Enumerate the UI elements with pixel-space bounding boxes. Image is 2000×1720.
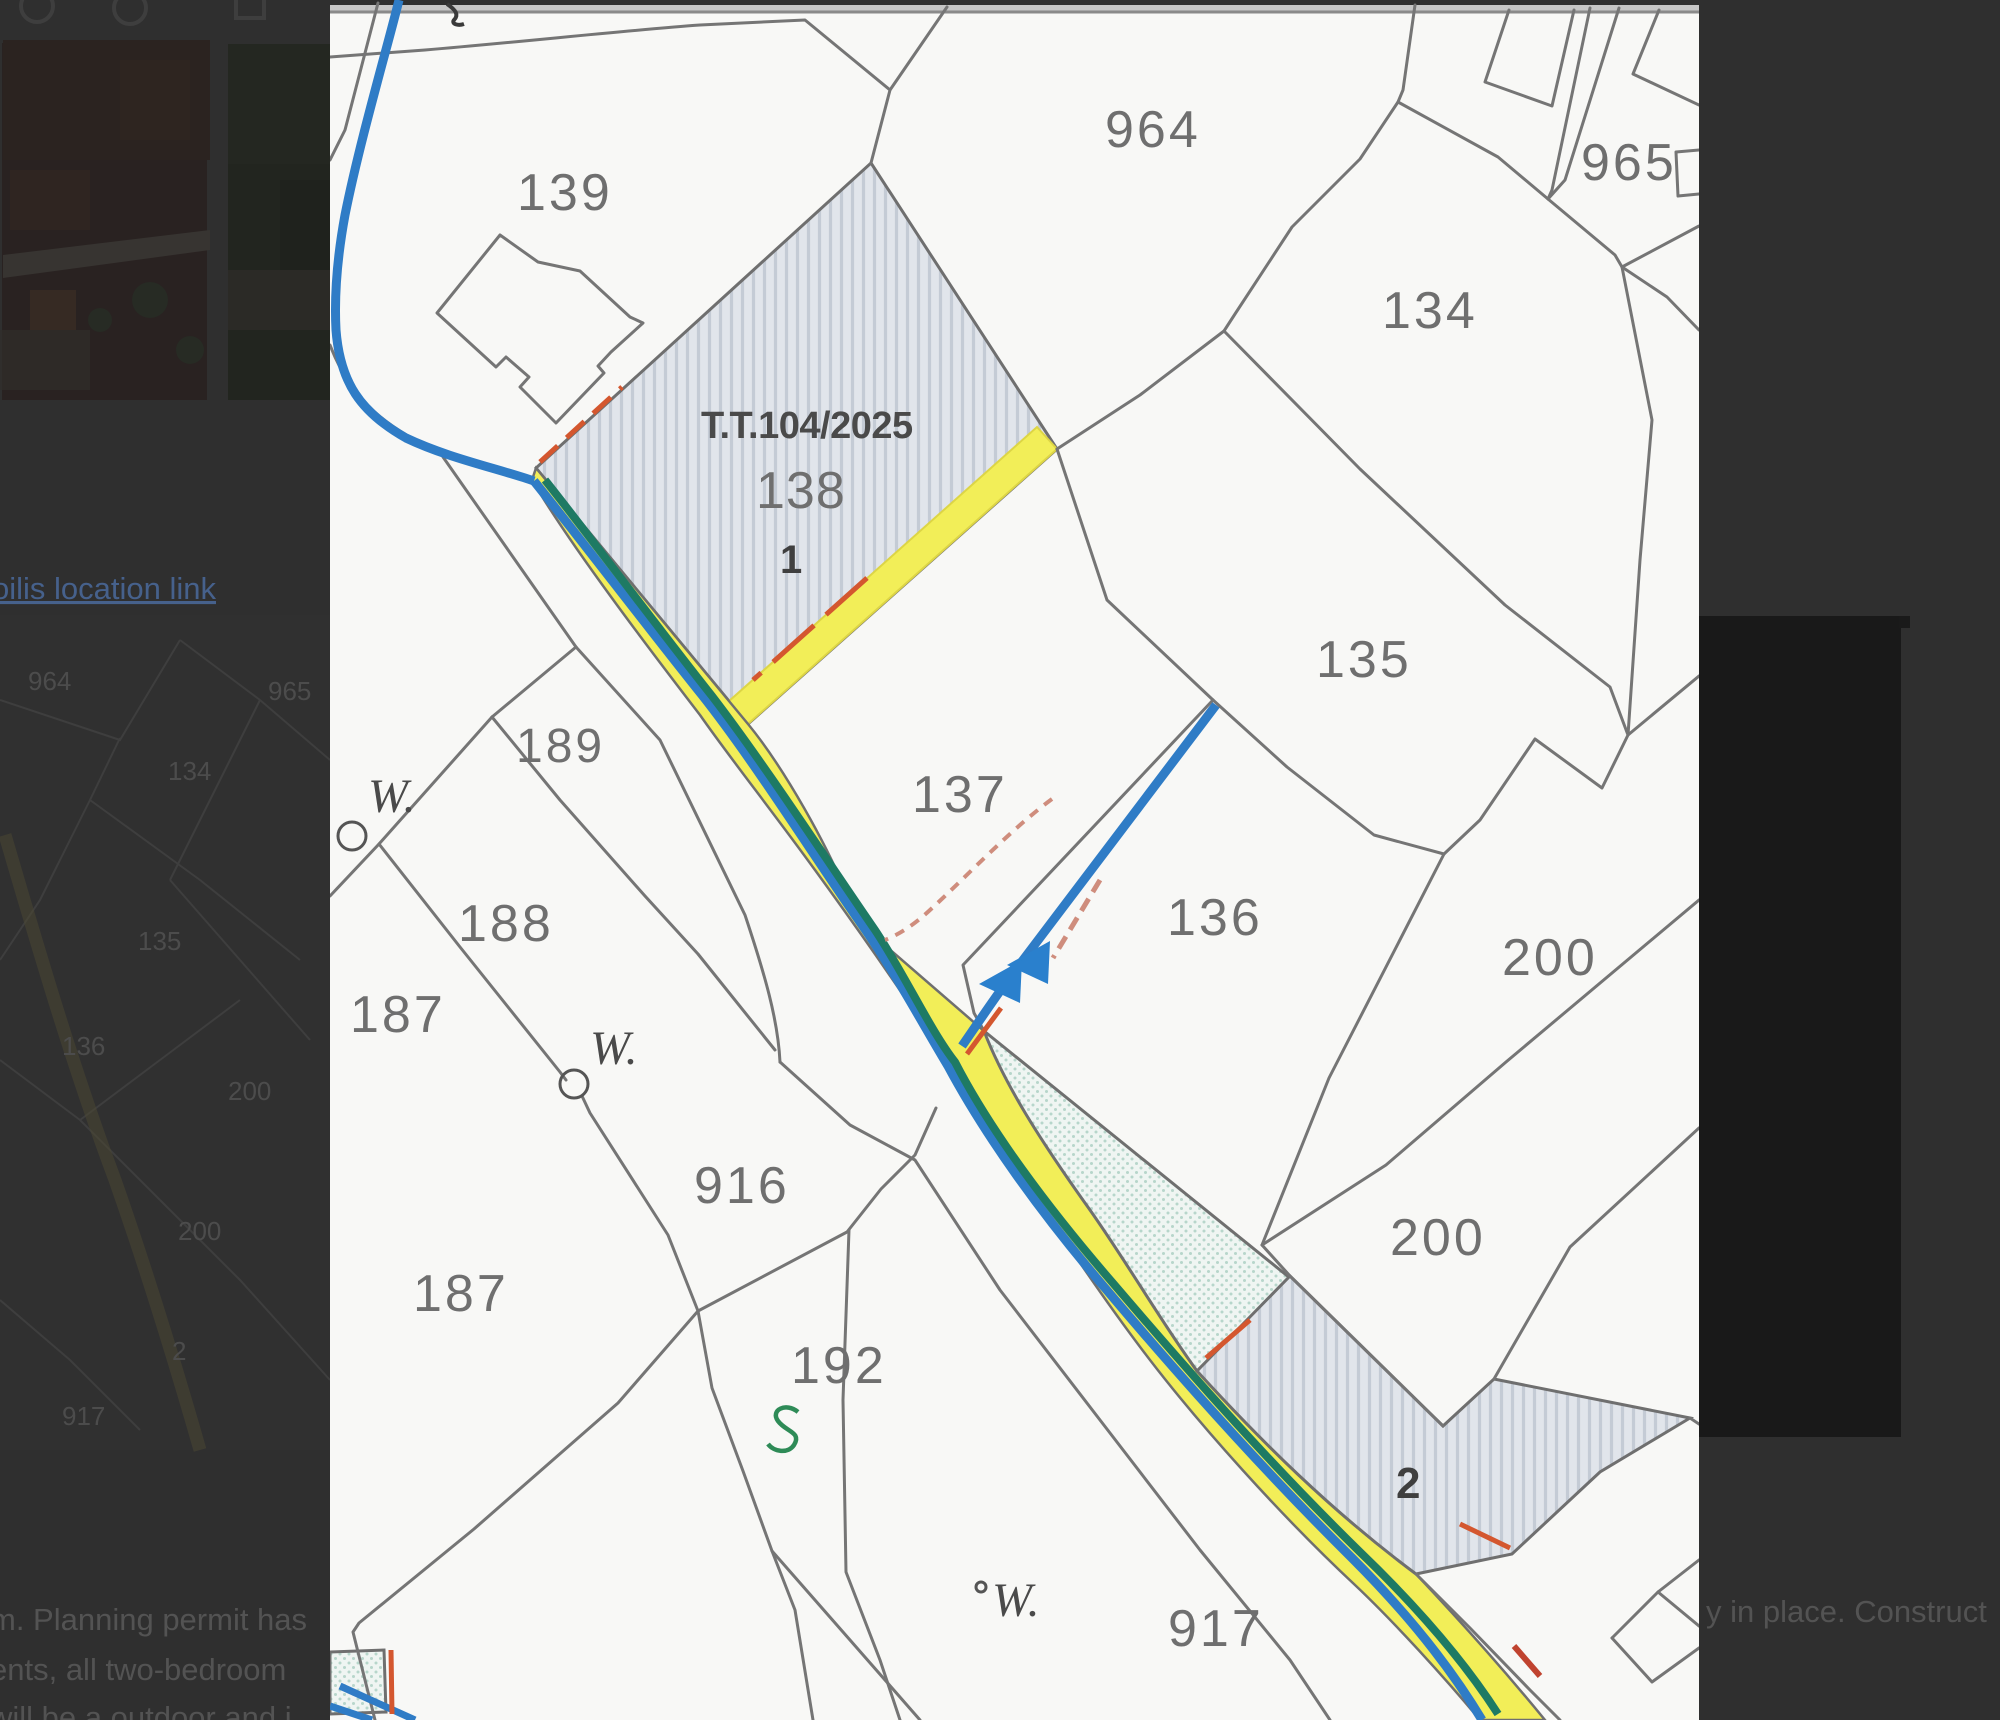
- svg-text:192: 192: [791, 1337, 887, 1395]
- svg-text:965: 965: [268, 676, 311, 706]
- svg-text:2: 2: [1396, 1459, 1420, 1508]
- svg-text:200: 200: [228, 1076, 271, 1106]
- svg-text:200: 200: [1390, 1209, 1486, 1267]
- svg-text:964: 964: [1105, 101, 1201, 159]
- svg-text:W.: W.: [590, 1022, 638, 1075]
- svg-text:W.: W.: [992, 1574, 1040, 1627]
- svg-text:917: 917: [62, 1401, 105, 1431]
- svg-text:m. Planning permit has: m. Planning permit has: [0, 1602, 307, 1637]
- svg-text:2: 2: [172, 1336, 186, 1366]
- svg-text:135: 135: [1316, 631, 1412, 689]
- svg-text:will be a outdoor and i: will be a outdoor and i: [0, 1700, 292, 1720]
- svg-text:136: 136: [62, 1031, 105, 1061]
- svg-text:187: 187: [413, 1265, 509, 1323]
- svg-text:188: 188: [458, 895, 554, 953]
- svg-text:T.T.104/2025: T.T.104/2025: [701, 405, 913, 447]
- svg-text:oilis location link: oilis location link: [0, 571, 216, 606]
- svg-text:1: 1: [780, 538, 802, 582]
- svg-text:138: 138: [756, 462, 846, 520]
- svg-text:W.: W.: [368, 770, 416, 823]
- svg-text:y in place. Construct: y in place. Construct: [1706, 1594, 1987, 1629]
- svg-text:136: 136: [1167, 889, 1263, 947]
- svg-text:ents, all two-bedroom: ents, all two-bedroom: [0, 1652, 286, 1687]
- svg-text:917: 917: [1168, 1600, 1264, 1658]
- svg-text:200: 200: [178, 1216, 221, 1246]
- svg-text:137: 137: [912, 766, 1008, 824]
- svg-text:189: 189: [516, 720, 605, 773]
- svg-text:134: 134: [168, 756, 211, 786]
- svg-text:965: 965: [1581, 134, 1677, 192]
- svg-text:916: 916: [694, 1157, 790, 1215]
- svg-text:187: 187: [350, 986, 446, 1044]
- svg-text:139: 139: [517, 164, 613, 222]
- svg-text:135: 135: [138, 926, 181, 956]
- svg-text:964: 964: [28, 666, 71, 696]
- svg-text:200: 200: [1502, 929, 1598, 987]
- svg-text:134: 134: [1382, 282, 1478, 340]
